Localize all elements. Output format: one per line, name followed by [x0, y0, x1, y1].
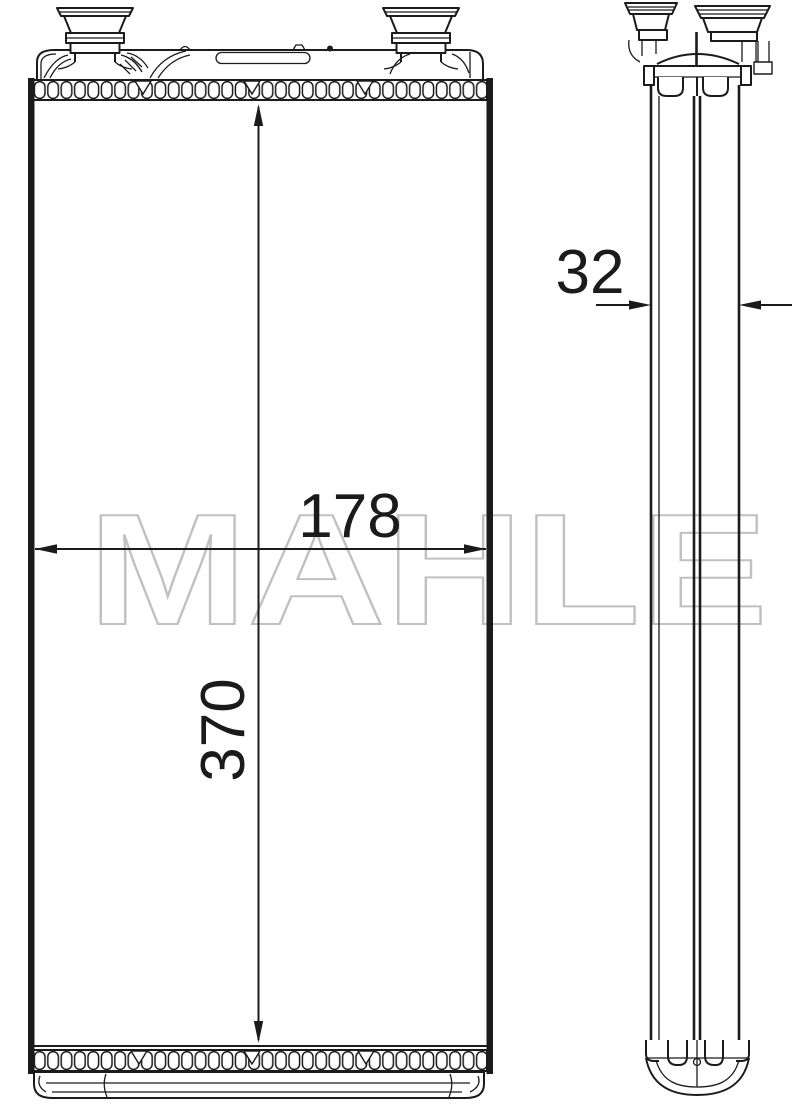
port-collar [711, 32, 757, 41]
width-dimension-label: 178 [298, 482, 401, 551]
gasket-band [33, 80, 487, 100]
port-edge-curve [629, 40, 640, 62]
mahle-watermark: MAHLE [88, 482, 768, 658]
technical-drawing-page: MAHLE [0, 0, 800, 1111]
side-left-port [625, 3, 677, 62]
port-bracket-lines [758, 41, 769, 62]
heater-core-drawing: MAHLE [0, 0, 800, 1111]
port-taper [390, 16, 452, 33]
port-boss [658, 77, 683, 96]
height-dimension-label: 370 [189, 678, 258, 781]
port-taper [703, 18, 762, 32]
core-left-side-plate [28, 78, 35, 1074]
gasket-band [33, 1050, 487, 1071]
bottom-gasket-strip [33, 1050, 487, 1071]
bottom-clip [705, 1040, 723, 1065]
port-collar [639, 30, 667, 40]
core-right-side-plate [487, 78, 494, 1074]
width-arrowhead-left [35, 544, 57, 554]
tank-dome [657, 54, 739, 64]
top-tank-outline [37, 50, 483, 80]
port-neck [742, 41, 756, 62]
port-collar-lower [397, 43, 446, 53]
port-taper [633, 14, 669, 30]
tank-left-tab [644, 66, 654, 85]
port-bracket [754, 62, 772, 74]
port-boss [703, 77, 728, 96]
port-flange [625, 3, 677, 14]
bottom-clip [668, 1040, 687, 1065]
depth-dimension-label: 32 [556, 238, 625, 307]
bottom-tank-outline [34, 1072, 484, 1098]
port-taper [64, 16, 126, 33]
top-gasket-strip [33, 80, 487, 100]
port-collar-lower [71, 43, 120, 53]
tank-right-tab [741, 66, 751, 85]
side-bottom-tank [646, 1040, 749, 1095]
height-arrowhead-bottom [254, 1021, 263, 1043]
depth-arrowhead-left [629, 300, 651, 309]
side-right-port [695, 6, 772, 74]
front-bottom-tank [34, 1072, 484, 1098]
port-neck [642, 40, 656, 56]
port-flange [695, 6, 770, 18]
tank-dot [327, 46, 333, 52]
depth-arrowhead-right [739, 300, 761, 309]
height-arrowhead-top [254, 104, 263, 126]
dimension-depth: 32 [556, 238, 792, 310]
